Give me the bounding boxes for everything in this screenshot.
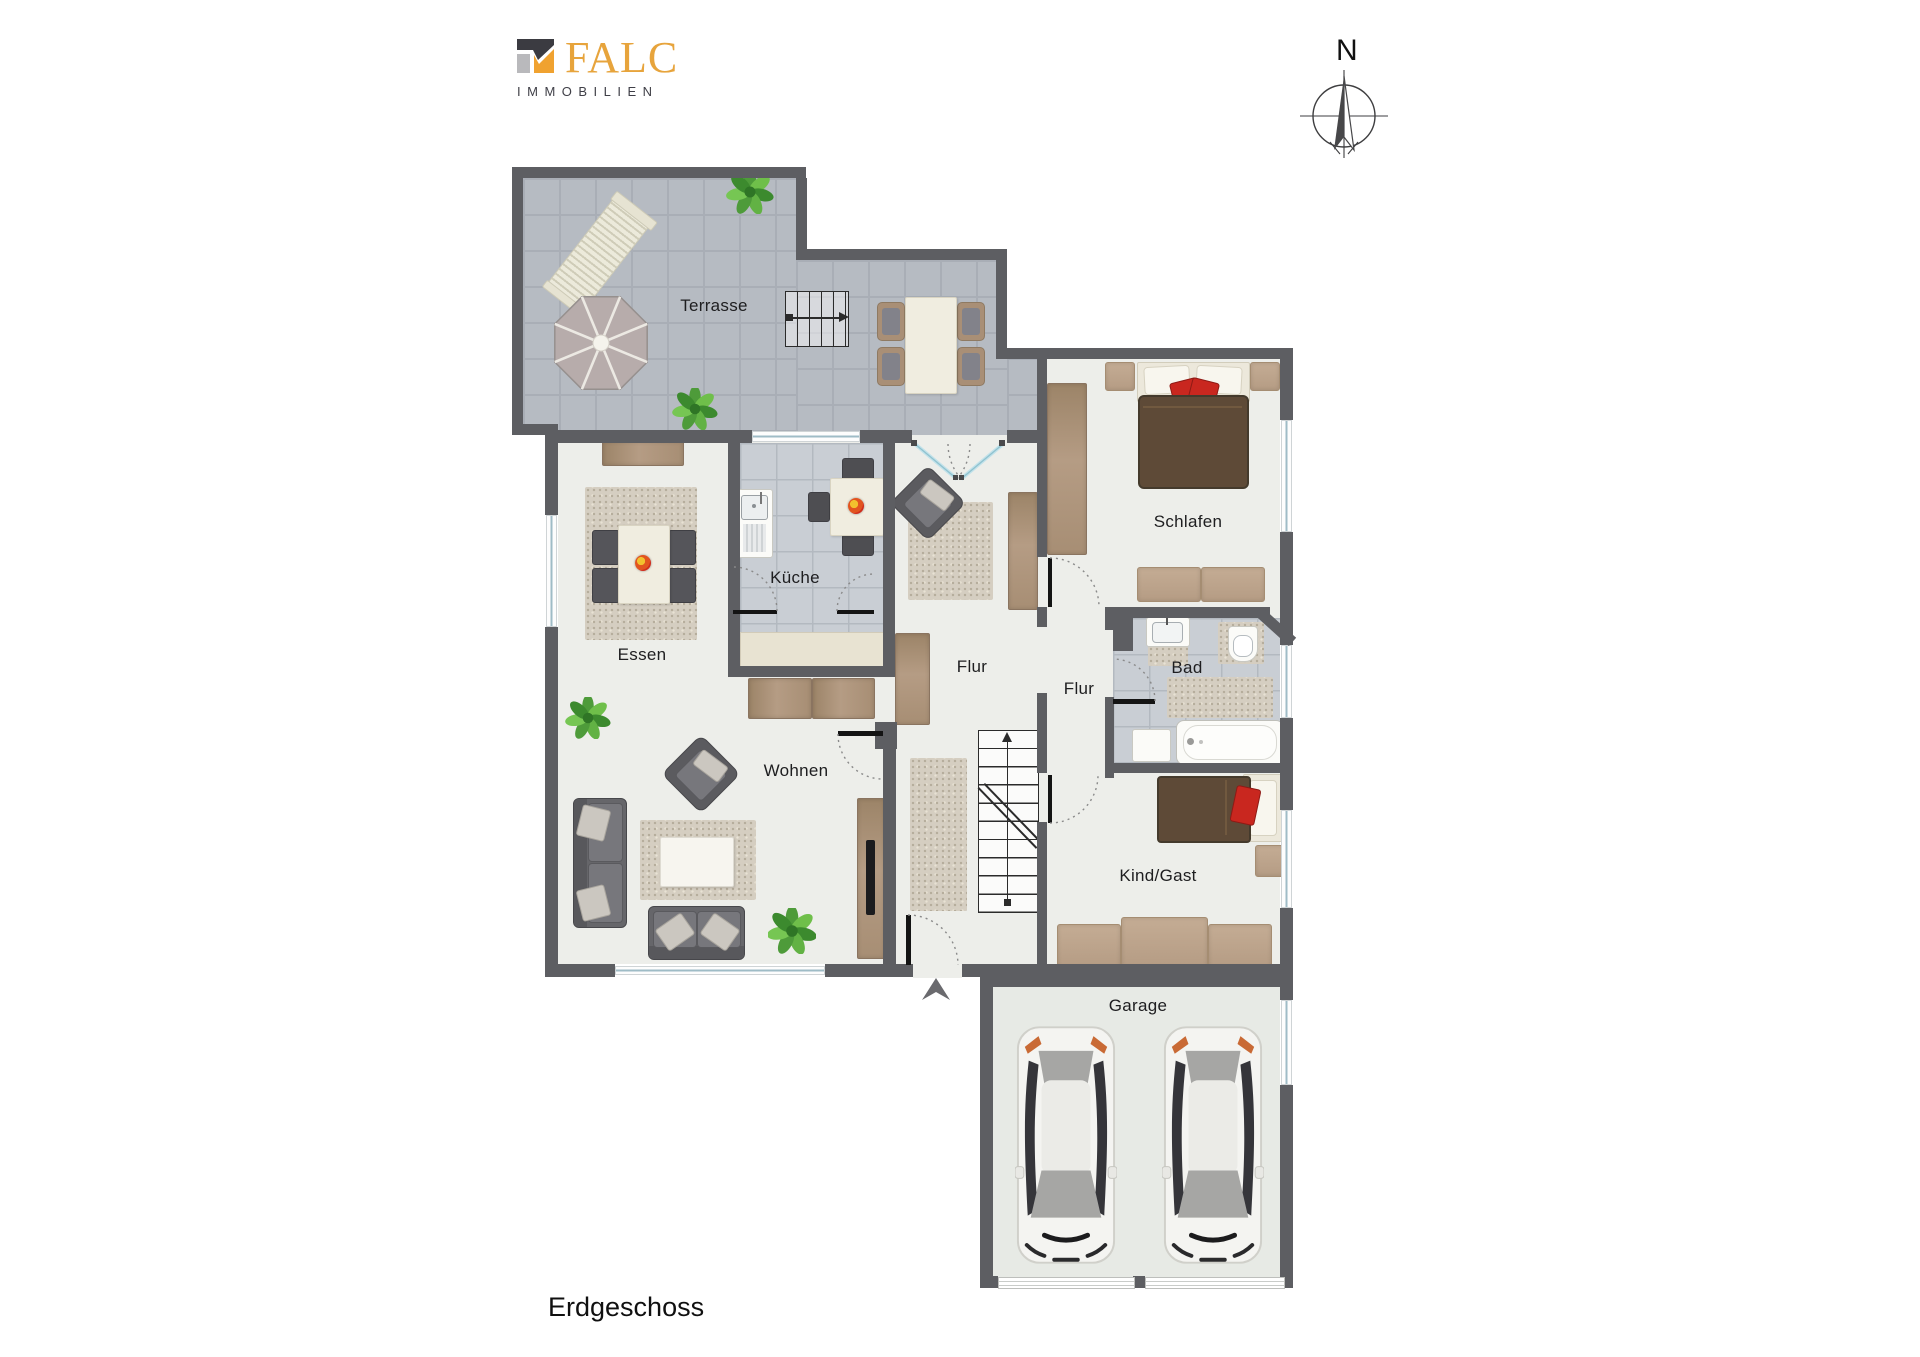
wall bbox=[883, 430, 895, 677]
wall bbox=[988, 1276, 998, 1288]
terrace-floor bbox=[1007, 358, 1037, 435]
room-label-schlafen: Schlafen bbox=[1154, 512, 1223, 532]
compass-icon: N bbox=[1292, 26, 1396, 160]
window bbox=[1281, 1000, 1292, 1085]
wall bbox=[1037, 693, 1047, 773]
nightstand-symbol bbox=[1105, 362, 1135, 391]
room-label-kueche: Küche bbox=[770, 568, 820, 588]
wall bbox=[545, 627, 558, 977]
wall bbox=[512, 167, 523, 435]
plant-symbol bbox=[768, 908, 816, 954]
wall bbox=[1280, 1085, 1293, 1288]
room-label-kind-gast: Kind/Gast bbox=[1119, 866, 1196, 886]
sideboard-symbol bbox=[1208, 924, 1272, 968]
entrance-arrow-icon bbox=[922, 978, 950, 1000]
sofa-symbol bbox=[573, 798, 627, 928]
window bbox=[546, 515, 557, 627]
sideboard-symbol bbox=[1137, 567, 1201, 602]
rug-symbol bbox=[910, 758, 967, 911]
wall bbox=[825, 964, 913, 977]
parasol-symbol bbox=[549, 291, 653, 395]
room-label-terrasse: Terrasse bbox=[680, 296, 748, 316]
bathtub-symbol bbox=[1176, 720, 1284, 765]
dining-table-symbol bbox=[905, 297, 957, 394]
wall bbox=[1037, 822, 1047, 964]
outdoor-steps-symbol bbox=[785, 291, 849, 347]
bath-rug-symbol bbox=[1167, 677, 1273, 718]
floor-title: Erdgeschoss bbox=[548, 1292, 704, 1323]
wall bbox=[728, 666, 895, 677]
wall bbox=[962, 964, 1047, 977]
chair-symbol bbox=[877, 347, 905, 386]
kitchen-sink-symbol bbox=[737, 489, 773, 558]
window bbox=[1281, 810, 1292, 908]
sideboard-symbol bbox=[602, 441, 684, 466]
wall bbox=[883, 749, 896, 967]
wall bbox=[728, 443, 740, 668]
washbasin-symbol bbox=[1146, 617, 1190, 647]
sideboard-symbol bbox=[748, 678, 812, 719]
floorplan-page: { "brand": { "name": "FALC", "subtitle":… bbox=[0, 0, 1920, 1357]
sideboard-symbol bbox=[1057, 924, 1121, 968]
chair-symbol bbox=[877, 302, 905, 341]
wall bbox=[980, 977, 1293, 987]
car-symbol bbox=[1162, 1022, 1264, 1268]
door-leaf bbox=[1113, 699, 1155, 704]
wall bbox=[545, 964, 615, 977]
wall bbox=[1105, 607, 1270, 618]
wall bbox=[1280, 348, 1293, 420]
chair-symbol bbox=[808, 492, 830, 522]
wall bbox=[796, 178, 807, 260]
chair-symbol bbox=[668, 568, 696, 603]
door-leaf bbox=[906, 915, 911, 965]
toilet-symbol bbox=[1228, 626, 1258, 662]
wall bbox=[545, 430, 558, 515]
wall bbox=[545, 430, 752, 443]
wall bbox=[1113, 618, 1133, 651]
fruit-bowl-symbol bbox=[848, 498, 864, 514]
chair-symbol bbox=[842, 534, 874, 556]
chair-symbol bbox=[957, 347, 985, 386]
wardrobe-symbol bbox=[1008, 492, 1038, 610]
bathroom-cabinet-symbol bbox=[1132, 729, 1171, 762]
double-bed-symbol bbox=[1137, 362, 1250, 488]
single-bed-symbol bbox=[1157, 774, 1283, 842]
door-leaf bbox=[1048, 775, 1052, 823]
room-label-garage: Garage bbox=[1109, 996, 1168, 1016]
loveseat-symbol bbox=[648, 906, 745, 960]
wall bbox=[1105, 763, 1293, 773]
brand-subtitle: IMMOBILIEN bbox=[517, 84, 737, 99]
window bbox=[752, 431, 860, 442]
sideboard-symbol bbox=[1121, 917, 1208, 968]
chair-symbol bbox=[957, 302, 985, 341]
brand-logo: FALC IMMOBILIEN bbox=[517, 38, 737, 99]
wardrobe-symbol bbox=[1047, 383, 1087, 555]
brand-name: FALC bbox=[565, 38, 678, 78]
wall bbox=[512, 167, 806, 178]
entrance-threshold bbox=[913, 964, 962, 978]
tv-symbol bbox=[866, 840, 875, 915]
door-leaf bbox=[1048, 558, 1052, 607]
chair-symbol bbox=[592, 568, 620, 603]
room-label-bad: Bad bbox=[1171, 658, 1202, 678]
sideboard-symbol bbox=[1201, 567, 1265, 602]
window bbox=[1281, 420, 1292, 532]
compass-north-label: N bbox=[1336, 34, 1358, 67]
plant-symbol bbox=[565, 697, 611, 739]
garage-door bbox=[998, 1277, 1135, 1289]
nightstand-symbol bbox=[1250, 362, 1280, 391]
room-label-essen: Essen bbox=[618, 645, 667, 665]
window bbox=[615, 966, 825, 975]
wardrobe-symbol bbox=[895, 633, 930, 725]
kitchen-counter-symbol bbox=[740, 632, 885, 669]
garage-door bbox=[1145, 1277, 1285, 1289]
door-leaf bbox=[733, 610, 777, 614]
wall bbox=[1037, 607, 1047, 627]
room-label-flur: Flur bbox=[957, 657, 987, 677]
wall bbox=[996, 249, 1007, 359]
room-label-wohnen: Wohnen bbox=[764, 761, 829, 781]
stairs-symbol bbox=[978, 730, 1039, 913]
fruit-bowl-symbol bbox=[635, 555, 651, 571]
window bbox=[1281, 645, 1292, 718]
wall bbox=[1037, 358, 1047, 557]
brand-logo-icon bbox=[517, 38, 555, 78]
plant-symbol bbox=[672, 388, 718, 430]
wall bbox=[980, 977, 993, 1288]
sideboard-symbol bbox=[812, 678, 875, 719]
door-leaf bbox=[837, 610, 874, 614]
car-symbol bbox=[1015, 1022, 1117, 1268]
coffee-table-symbol bbox=[660, 837, 734, 887]
room-label-flur-2: Flur bbox=[1064, 679, 1094, 699]
wall bbox=[796, 249, 1007, 260]
wall bbox=[1037, 964, 1293, 977]
door-leaf bbox=[838, 731, 883, 736]
chair-symbol bbox=[668, 530, 696, 565]
chair-symbol bbox=[592, 530, 620, 565]
